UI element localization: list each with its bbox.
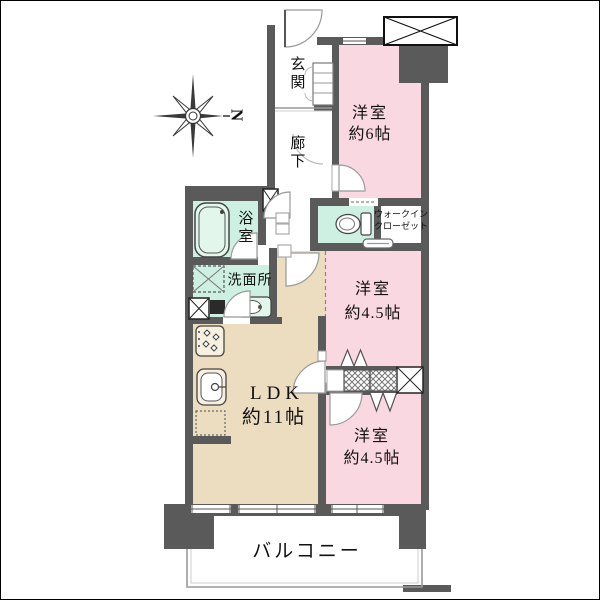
closet-icon — [370, 370, 397, 391]
label-ldk: LDK — [250, 382, 304, 406]
elevator-shaft-icon — [384, 17, 457, 45]
label-north: N — [226, 109, 247, 121]
entrance-door-arc — [285, 10, 322, 47]
label-bedroom45-mid: 洋室 — [355, 280, 391, 300]
label-bedroom45-low: 洋室 — [354, 427, 390, 447]
label-genkan: 玄関 — [287, 56, 306, 92]
toilet-icon — [336, 213, 371, 235]
label-rouka: 廊下 — [287, 135, 306, 171]
floor-plan: 玄関 廊下 洋室 約6帖 ウォークイン クローゼット 浴室 洗面所 LDK 約1… — [0, 0, 600, 600]
window — [342, 38, 367, 44]
label-bathroom: 浴室 — [235, 210, 254, 246]
window — [238, 505, 316, 513]
shoe-cabinet-icon — [305, 63, 333, 105]
closet-icon — [344, 370, 370, 391]
label-bedroom45-mid-size: 約4.5帖 — [344, 304, 401, 324]
wic-sliding-door-icon — [363, 239, 393, 248]
kitchen-sink-icon — [197, 369, 226, 405]
label-bedroom6: 洋室 — [352, 104, 388, 124]
window — [331, 505, 384, 513]
label-wic-line2: クローゼット — [374, 220, 428, 232]
pipe-space-icon — [189, 298, 209, 319]
label-bedroom45-low-size: 約4.5帖 — [343, 449, 400, 469]
label-washroom: 洗面所 — [228, 272, 273, 290]
label-bedroom6-size: 約6帖 — [348, 125, 391, 145]
bathtub-icon — [195, 203, 229, 257]
pillar-right — [399, 509, 426, 549]
label-balcony: バルコニー — [252, 540, 362, 564]
label-wic: ウォークイン クローゼット — [374, 208, 428, 232]
label-ldk-size: 約11帖 — [242, 406, 306, 430]
label-wic-line1: ウォークイン — [374, 208, 428, 220]
compass-rose-icon — [153, 74, 230, 158]
duct-box — [210, 300, 225, 314]
stove-icon — [196, 326, 224, 356]
closets — [327, 370, 397, 391]
pillar-left — [164, 509, 214, 549]
pipe-space-icon — [397, 367, 423, 393]
window — [191, 505, 231, 513]
